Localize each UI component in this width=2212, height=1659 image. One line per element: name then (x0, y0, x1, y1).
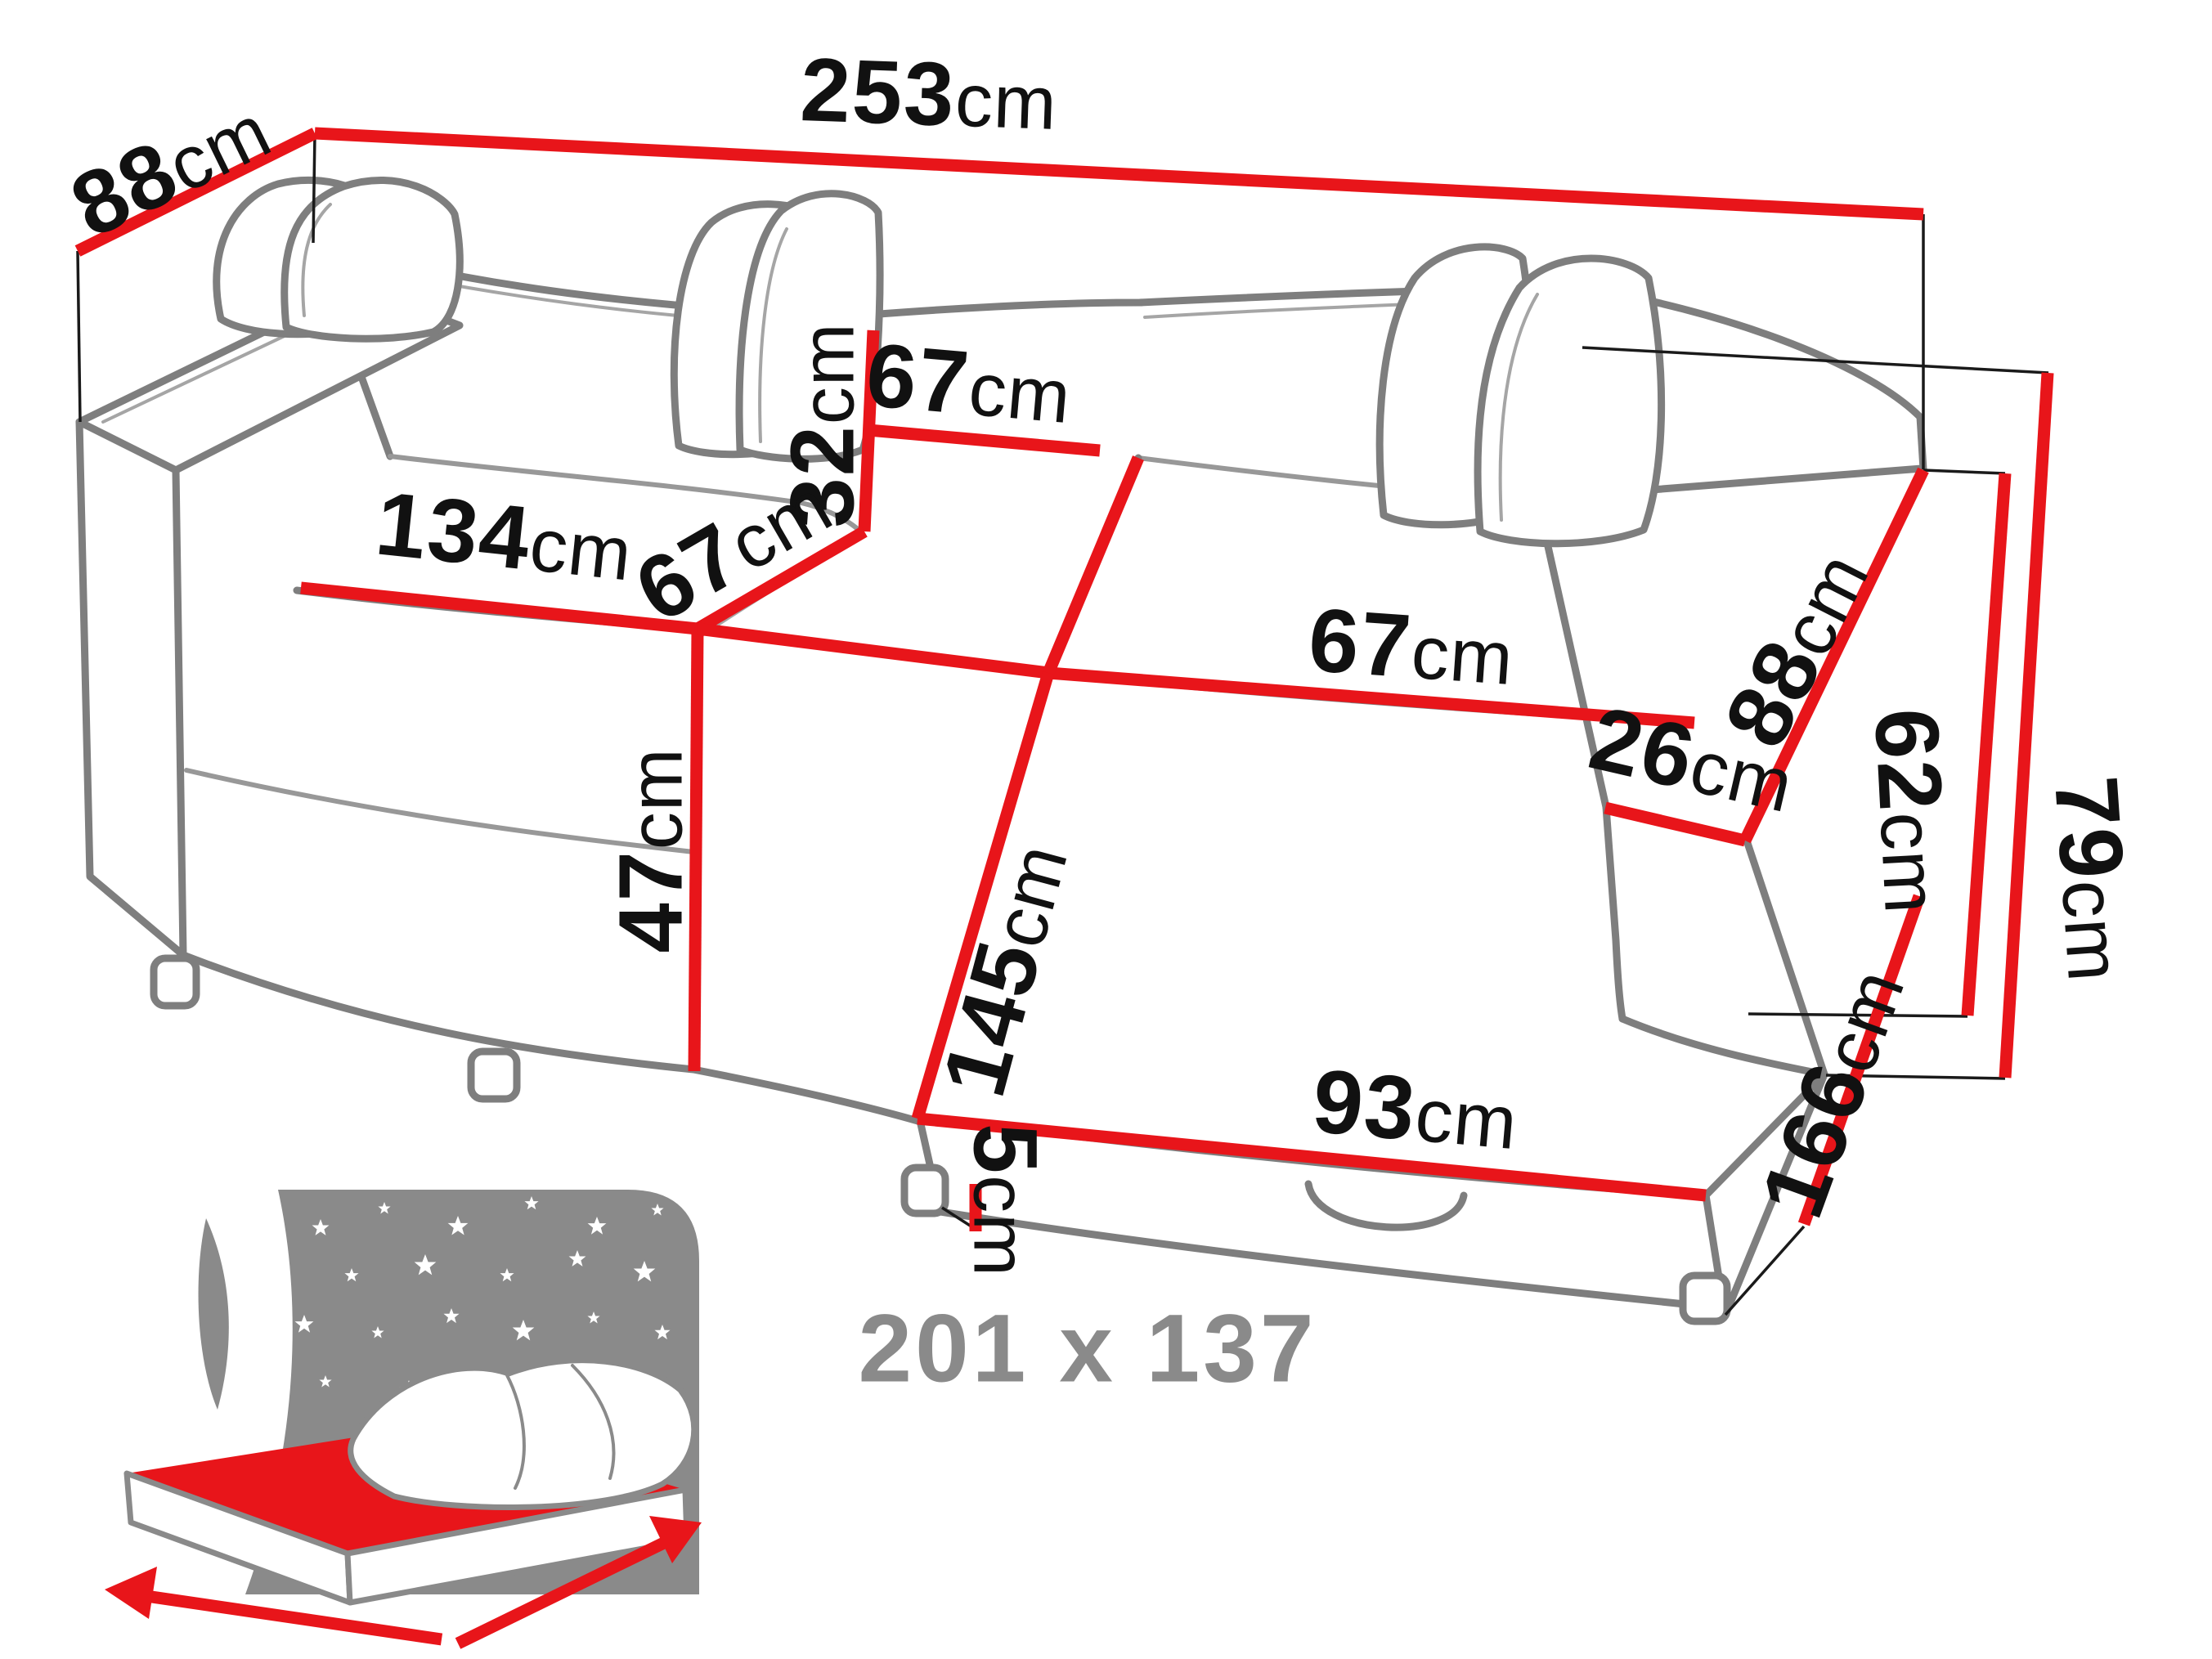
label-chaise-width: 93cm (1309, 1051, 1523, 1168)
sofa-leg-ottoman (904, 1168, 945, 1213)
ottoman-handle (1308, 1184, 1464, 1227)
corner-sofa-dimension-diagram: 88cm 253cm 32cm 67cm 67cm 134cm 47cm 67c… (0, 0, 2212, 1659)
label-armrest-height: 62cm (1855, 706, 1967, 917)
dim-line-armrest-height (1967, 473, 2005, 1016)
sofa-leg-chaise-right (1683, 1276, 1727, 1321)
label-bed-size: 201 x 137 (859, 1294, 1317, 1402)
label-leg-height: 5cm (955, 1123, 1056, 1277)
right-armrest-inner-edge (1606, 807, 1622, 1019)
label-seat-width: 134cm (371, 473, 637, 599)
bed-width-arrow-line (135, 1594, 442, 1639)
label-seat-depth-right: 67cm (1305, 590, 1517, 704)
label-width-total: 253cm (799, 39, 1059, 149)
label-sleep-length: 145cm (923, 832, 1087, 1106)
label-seat-height: 47cm (601, 748, 702, 953)
starry-night-panel-wedge (199, 1218, 229, 1410)
left-armrest-front-face (79, 422, 183, 955)
sofa-leg-left-front (471, 1051, 517, 1099)
dim-line-seat-width (301, 588, 698, 629)
backrest-top-edge (313, 243, 1578, 321)
ottoman-bottom-edge (940, 1212, 1724, 1308)
label-total-height: 79cm (2035, 773, 2150, 985)
sleeping-area-icon (105, 1190, 702, 1643)
ext-depth-front (78, 251, 80, 422)
dim-line-width-total (315, 133, 1923, 214)
ext-armrest-height-top (1923, 470, 2005, 473)
label-chaise-depth: 166cm (1741, 954, 1923, 1230)
label-backrest-width: 67cm (863, 325, 1076, 442)
sofa-leg-left-arm (154, 958, 196, 1006)
sofa-dimension-diagram-page: 88cm 253cm 32cm 67cm 67cm 134cm 47cm 67c… (0, 0, 2212, 1659)
ext-depth-back (313, 133, 315, 243)
dim-line-total-height (2005, 373, 2048, 1078)
dim-line-seat-edge (698, 629, 1048, 673)
base-bottom-edge-left (183, 955, 921, 1122)
bed-width-arrow-head (105, 1567, 157, 1619)
dim-line-corner-junction (1048, 458, 1138, 673)
ext-chaise-depth-bottom (1725, 1226, 1804, 1315)
pillow-left-front (285, 180, 460, 339)
